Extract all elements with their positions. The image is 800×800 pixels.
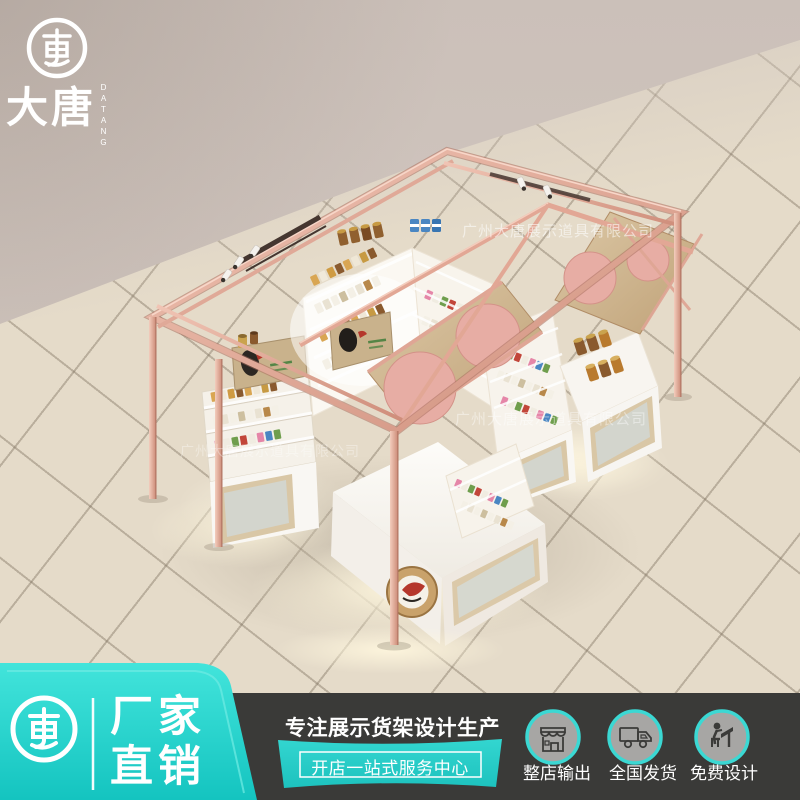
factory-badge-line1: 厂家 bbox=[100, 696, 216, 739]
slogan-sub: 开店一站式服务中心 bbox=[292, 754, 488, 779]
brand-name-en: DATANG bbox=[99, 83, 108, 149]
watermark-text: 广州大唐展示道具有限公司 bbox=[462, 220, 654, 241]
product-image: 广州大唐展示道具有限公司 广州大唐展示道具有限公司 广州大唐展示道具有限公司 大… bbox=[0, 0, 800, 800]
factory-badge-line2: 直销 bbox=[100, 746, 216, 789]
watermark-text: 广州大唐展示道具有限公司 bbox=[180, 441, 360, 461]
feature-label-whole-store: 整店输出 bbox=[509, 759, 605, 784]
feature-icons bbox=[527, 711, 748, 763]
feature-label-free-design: 免费设计 bbox=[676, 759, 772, 784]
feature-icon-circle bbox=[609, 711, 661, 763]
brand-name-cn: 大唐 bbox=[6, 74, 96, 135]
feature-icon-circle bbox=[527, 711, 579, 763]
gondola-top-jars bbox=[337, 219, 441, 246]
slogan-main: 专注展示货架设计生产 bbox=[270, 712, 515, 742]
brand-logo: 大唐 DATANG bbox=[0, 0, 150, 140]
watermark-text: 广州大唐展示道具有限公司 bbox=[455, 408, 647, 429]
